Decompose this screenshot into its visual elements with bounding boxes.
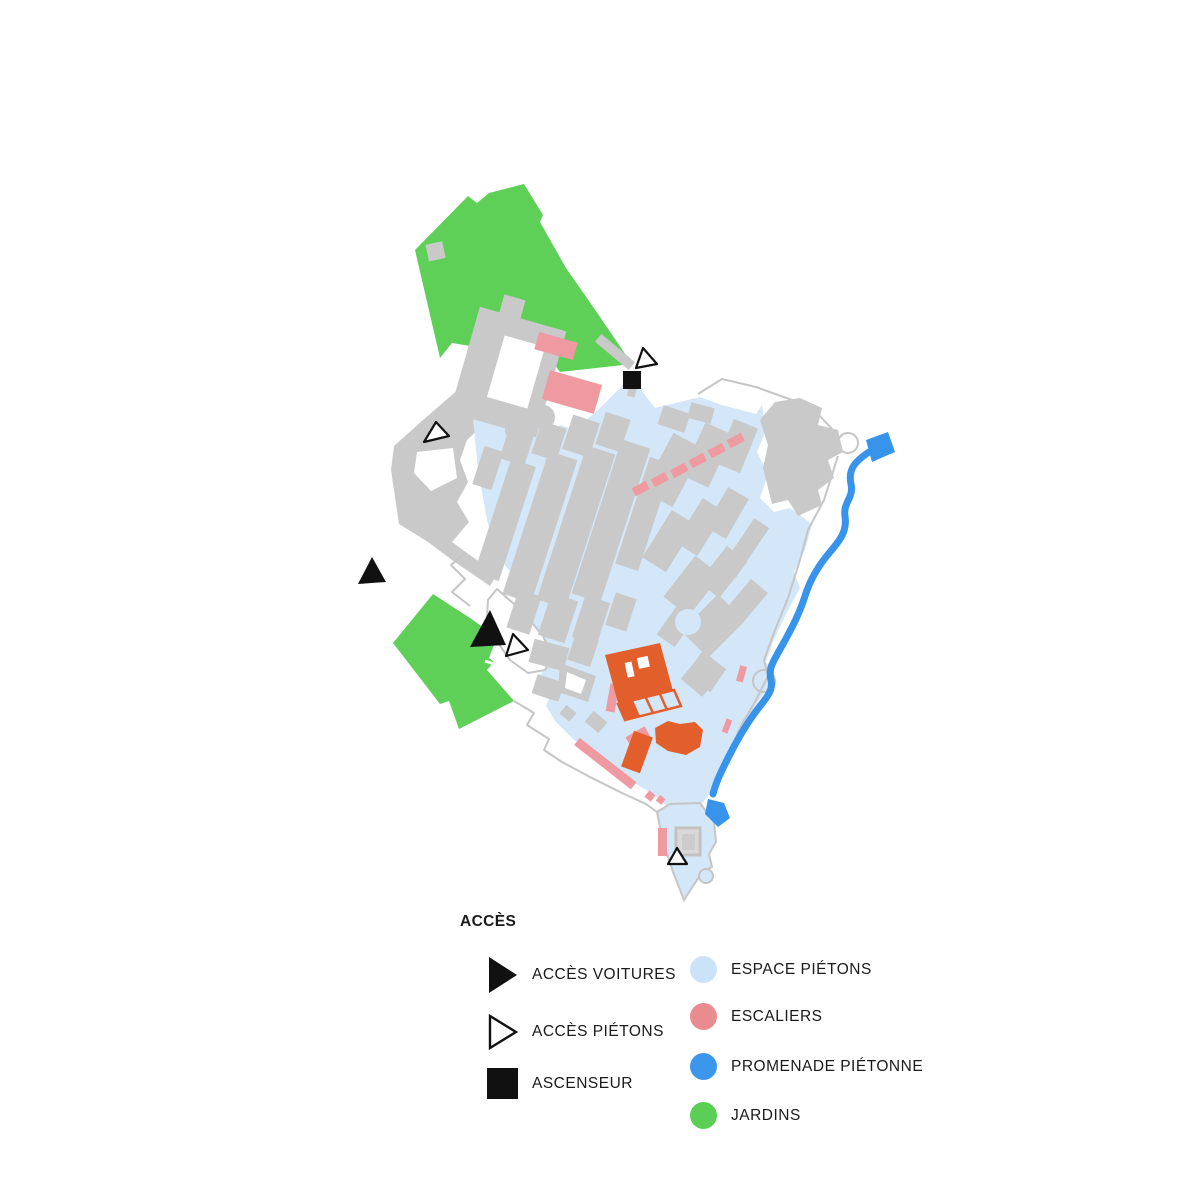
site-building-window bbox=[637, 656, 650, 669]
promenade-start bbox=[866, 432, 895, 462]
legend-label: ACCÈS PIÉTONS bbox=[532, 1023, 664, 1041]
legend-item-escaliers: ESCALIERS bbox=[690, 1003, 823, 1030]
building-cluster-northeast bbox=[760, 398, 843, 516]
bastion-turret bbox=[699, 869, 713, 883]
circle-swatch-icon bbox=[690, 1102, 717, 1129]
legend-item-ascenseur: ASCENSEUR bbox=[487, 1068, 633, 1099]
circle-swatch-icon bbox=[690, 1003, 717, 1030]
legend-item-acces-voitures: ACCÈS VOITURES bbox=[488, 956, 676, 994]
filled-square-icon bbox=[487, 1068, 518, 1099]
pedestrian-access-marker bbox=[636, 348, 657, 368]
legend-title: ACCÈS bbox=[460, 913, 516, 931]
circle-swatch-icon bbox=[690, 1053, 717, 1080]
legend-label: PROMENADE PIÉTONNE bbox=[731, 1058, 923, 1076]
bastion-building-core bbox=[682, 834, 695, 850]
legend-item-acces-pietons: ACCÈS PIÉTONS bbox=[488, 1013, 664, 1051]
site-plan-page: ACCÈS ACCÈS VOITURES ACCÈS PIÉTONS ASCEN… bbox=[0, 0, 1200, 1200]
building bbox=[426, 241, 446, 261]
stairs bbox=[542, 370, 602, 414]
outline-triangle-right-icon bbox=[488, 1013, 518, 1051]
legend-item-jardins: JARDINS bbox=[690, 1102, 801, 1129]
legend-label: ESPACE PIÉTONS bbox=[731, 961, 872, 979]
legend-label: ASCENSEUR bbox=[532, 1075, 633, 1093]
filled-triangle-right-icon bbox=[488, 956, 518, 994]
legend-label: JARDINS bbox=[731, 1107, 801, 1125]
legend-item-espace-pietons: ESPACE PIÉTONS bbox=[690, 956, 872, 983]
circle-swatch-icon bbox=[690, 956, 717, 983]
legend-label: ESCALIERS bbox=[731, 1008, 823, 1026]
street-circle bbox=[675, 609, 701, 635]
car-access-marker bbox=[358, 557, 386, 584]
stairs bbox=[658, 828, 667, 856]
elevator-marker bbox=[623, 371, 641, 389]
legend-item-promenade-pietonne: PROMENADE PIÉTONNE bbox=[690, 1053, 923, 1080]
legend-label: ACCÈS VOITURES bbox=[532, 966, 676, 984]
